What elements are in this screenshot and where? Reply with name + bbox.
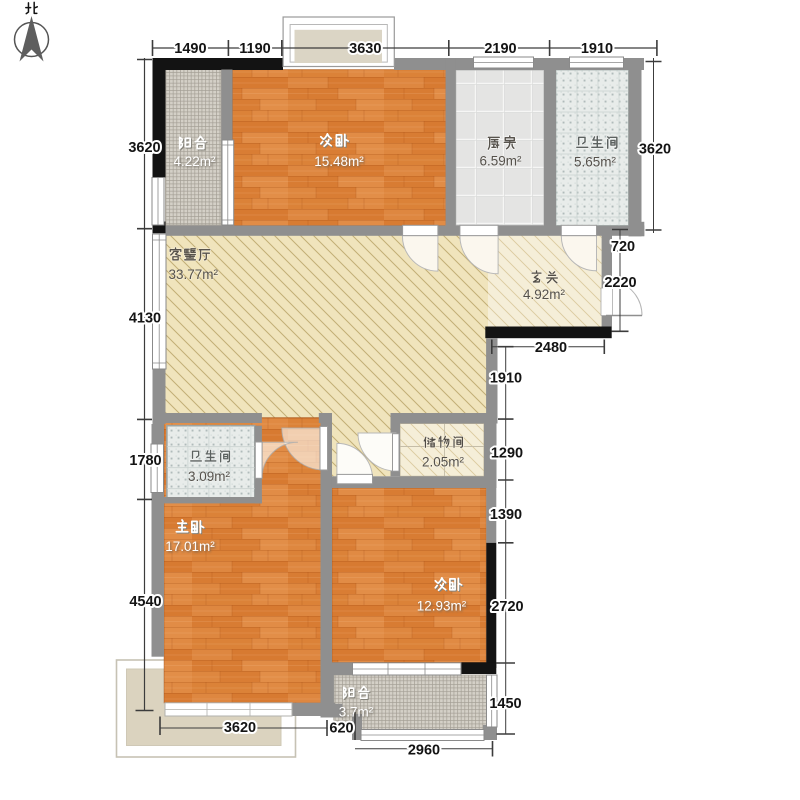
svg-text:2720: 2720 xyxy=(491,599,523,615)
svg-text:2480: 2480 xyxy=(535,340,567,356)
svg-text:620: 620 xyxy=(329,721,353,737)
svg-text:2190: 2190 xyxy=(484,41,516,57)
svg-text:3620: 3620 xyxy=(224,720,256,736)
svg-text:3.7m²: 3.7m² xyxy=(339,705,374,720)
svg-text:6.59m²: 6.59m² xyxy=(479,154,522,169)
svg-text:3.09m²: 3.09m² xyxy=(188,469,231,484)
svg-text:12.93m²: 12.93m² xyxy=(417,599,467,614)
svg-text:1910: 1910 xyxy=(581,41,613,57)
svg-text:3620: 3620 xyxy=(128,140,160,156)
svg-text:1190: 1190 xyxy=(239,41,270,57)
svg-text:4130: 4130 xyxy=(129,311,161,327)
svg-text:2960: 2960 xyxy=(408,743,440,759)
svg-text:1780: 1780 xyxy=(129,453,161,469)
svg-text:4.22m²: 4.22m² xyxy=(173,154,216,169)
svg-text:5.65m²: 5.65m² xyxy=(574,155,617,170)
svg-text:3630: 3630 xyxy=(349,41,381,57)
svg-text:33.77m²: 33.77m² xyxy=(169,267,219,282)
svg-text:4.92m²: 4.92m² xyxy=(523,287,566,302)
svg-text:1390: 1390 xyxy=(490,507,522,523)
svg-text:15.48m²: 15.48m² xyxy=(314,154,364,169)
svg-text:4540: 4540 xyxy=(129,594,161,610)
svg-text:1490: 1490 xyxy=(174,41,206,57)
svg-text:17.01m²: 17.01m² xyxy=(165,539,215,554)
svg-text:3620: 3620 xyxy=(639,142,671,158)
svg-text:1290: 1290 xyxy=(491,446,523,462)
svg-text:2.05m²: 2.05m² xyxy=(422,455,465,470)
svg-text:2220: 2220 xyxy=(604,275,636,291)
svg-text:1450: 1450 xyxy=(489,696,521,712)
svg-text:720: 720 xyxy=(611,239,635,255)
svg-text:1910: 1910 xyxy=(490,371,522,387)
